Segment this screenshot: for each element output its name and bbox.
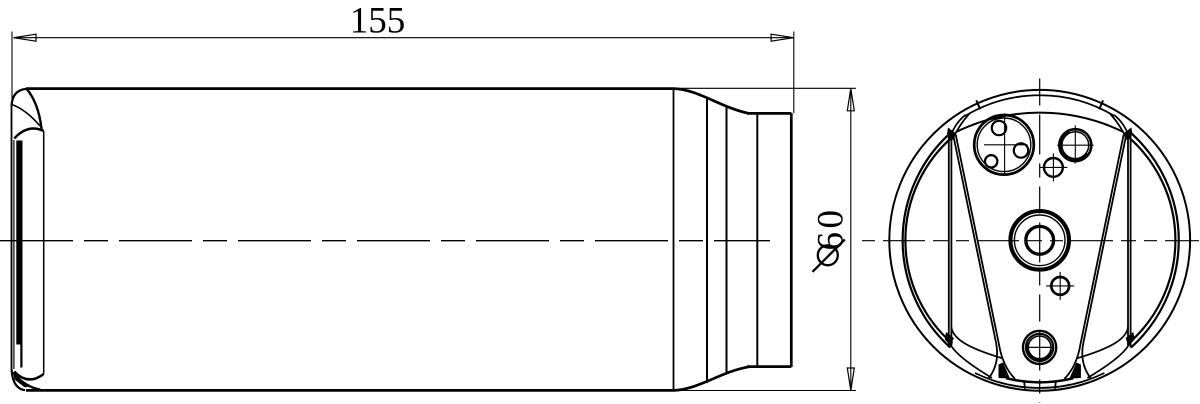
svg-text:60: 60 (811, 207, 852, 251)
svg-text:155: 155 (350, 1, 406, 42)
